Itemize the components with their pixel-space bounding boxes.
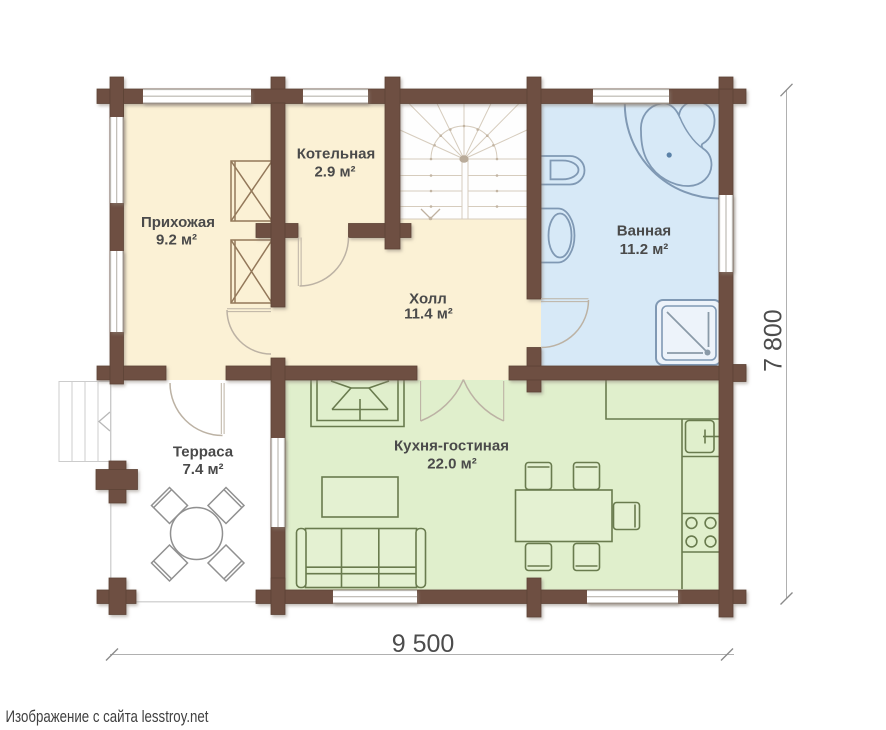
svg-text:22.0 м²: 22.0 м² xyxy=(427,456,476,473)
svg-text:11.2 м²: 11.2 м² xyxy=(620,241,669,258)
svg-text:9.2 м²: 9.2 м² xyxy=(156,232,197,249)
svg-text:9 500: 9 500 xyxy=(392,630,455,658)
svg-text:Терраса: Терраса xyxy=(173,444,234,461)
svg-text:7.4 м²: 7.4 м² xyxy=(182,461,223,478)
svg-text:7 800: 7 800 xyxy=(760,309,788,372)
svg-text:Кухня-гостиная: Кухня-гостиная xyxy=(394,438,509,455)
svg-text:2.9 м²: 2.9 м² xyxy=(314,164,355,181)
svg-text:11.4 м²: 11.4 м² xyxy=(404,306,453,323)
svg-text:Котельная: Котельная xyxy=(297,146,376,163)
svg-text:Ванная: Ванная xyxy=(617,223,671,240)
svg-text:Изображение с сайта lesstroy.n: Изображение с сайта lesstroy.net xyxy=(6,707,209,726)
svg-text:Прихожая: Прихожая xyxy=(141,214,215,231)
